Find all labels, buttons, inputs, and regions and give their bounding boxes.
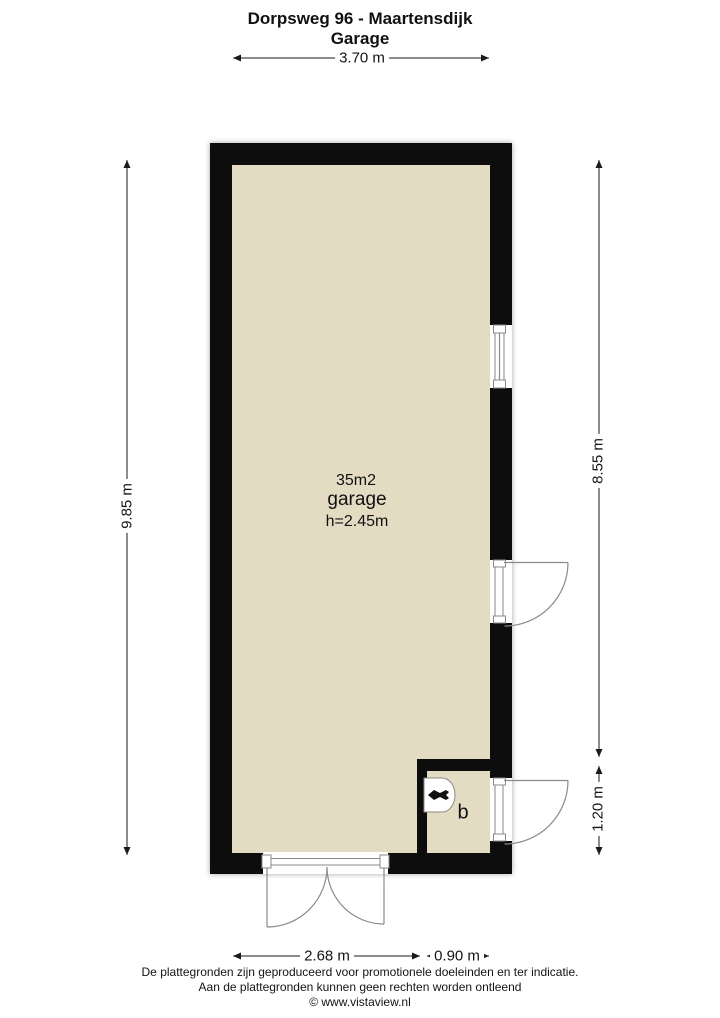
- dim-label-right-lower: 1.20 m: [590, 782, 607, 836]
- room-area-label: 35m2: [336, 472, 376, 490]
- dim-label-bottom-left: 2.68 m: [300, 948, 354, 965]
- footer-line-2: Aan de plattegronden kunnen geen rechten…: [0, 980, 720, 995]
- subroom-label: b: [457, 802, 468, 825]
- dim-label-right-upper: 8.55 m: [590, 434, 607, 488]
- dim-label-bottom-right: 0.90 m: [430, 948, 484, 965]
- footer-line-1: De plattegronden zijn geproduceerd voor …: [0, 965, 720, 980]
- footer-copyright: © www.vistaview.nl: [0, 995, 720, 1010]
- dim-label-left-height: 9.85 m: [119, 479, 136, 533]
- footer-disclaimer: De plattegronden zijn geproduceerd voor …: [0, 965, 720, 1010]
- interior-wall-horizontal: [417, 759, 490, 771]
- floorplan-page: Dorpsweg 96 - Maartensdijk Garage: [0, 0, 720, 1018]
- room-name-label: garage: [327, 489, 386, 511]
- sink-fixture: [424, 778, 455, 812]
- window-icon: [494, 325, 506, 388]
- room-height-label: h=2.45m: [326, 513, 389, 531]
- dim-label-top-width: 3.70 m: [335, 50, 389, 67]
